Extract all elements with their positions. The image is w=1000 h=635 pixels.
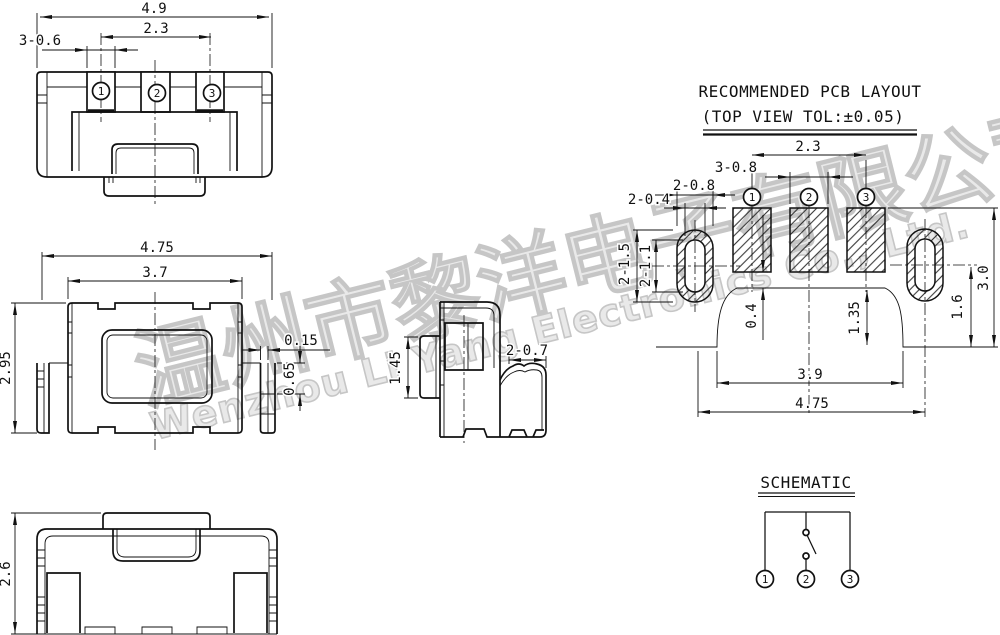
pcb-title-line2: (TOP VIEW TOL:±0.05) <box>702 107 905 126</box>
dim-top-pad: 3-0.6 <box>19 33 61 49</box>
dim-pcb-slot-l: 2-1.1 <box>638 245 654 287</box>
dim-pcb-hump: 1.35 <box>847 301 863 335</box>
terminal-3-label: 3 <box>209 87 216 100</box>
switch-contact-upper <box>803 530 809 536</box>
schematic-view: SCHEMATIC 1 2 3 <box>757 473 859 588</box>
schematic-title: SCHEMATIC <box>760 473 851 492</box>
dim-front-body: 3.7 <box>142 265 167 281</box>
dim-pcb-gap: 0.4 <box>744 303 760 328</box>
schematic-wires <box>765 512 850 570</box>
drawing-canvas: 4.9 2.3 3-0.6 1 2 3 4.75 3.7 2.95 0.15 0… <box>0 0 1000 635</box>
dim-front-width: 4.75 <box>140 240 174 256</box>
engineering-drawing-page: { "colors": { "line": "#111111", "waterm… <box>0 0 1000 635</box>
terminal-1-label: 1 <box>98 85 105 98</box>
front-view: 4.75 3.7 2.95 0.15 0.65 <box>0 240 330 450</box>
dim-pcb-oval-l: 2-1.5 <box>617 243 633 285</box>
switch-contact-lower <box>803 553 809 559</box>
dim-front-gap: 0.15 <box>284 333 318 349</box>
pcb-terminal-1-label: 1 <box>749 191 756 204</box>
dim-side-stem: 1.45 <box>388 351 404 385</box>
side-view: 1.45 2-0.7 <box>388 302 548 443</box>
schematic-terminal-3-label: 3 <box>847 573 854 586</box>
dim-front-leg: 0.65 <box>282 362 298 396</box>
button-front <box>102 330 212 403</box>
top-view: 4.9 2.3 3-0.6 1 2 3 <box>19 1 272 205</box>
dim-side-foot: 2-0.7 <box>506 343 548 359</box>
dim-pcb-total-h: 3.0 <box>976 265 992 290</box>
terminal-2-label: 2 <box>154 87 161 100</box>
pcb-title-line1: RECOMMENDED PCB LAYOUT <box>699 82 922 101</box>
dim-top-pitch: 2.3 <box>143 21 168 37</box>
dim-front-height: 2.95 <box>0 351 14 385</box>
dim-pcb-pitch: 2.3 <box>795 139 820 155</box>
dim-top-width: 4.9 <box>141 1 166 17</box>
dim-pcb-inner-w: 3.9 <box>797 367 822 383</box>
dim-pcb-slot-w: 2-0.4 <box>628 192 670 208</box>
dim-pcb-oval-w: 2-0.8 <box>673 178 715 194</box>
dim-pcb-outer-w: 4.75 <box>795 396 829 412</box>
dim-pcb-oval-y: 1.6 <box>950 294 966 319</box>
schematic-terminal-2-label: 2 <box>803 573 810 586</box>
dim-pcb-pad-w: 3-0.8 <box>715 160 757 176</box>
pcb-terminal-3-label: 3 <box>863 191 870 204</box>
pcb-terminal-2-label: 2 <box>806 191 813 204</box>
bottom-view: 2.6 <box>0 513 277 634</box>
schematic-terminal-1-label: 1 <box>762 573 769 586</box>
dim-bottom-height: 2.6 <box>0 561 14 586</box>
pcb-layout-view: RECOMMENDED PCB LAYOUT (TOP VIEW TOL:±0.… <box>617 82 998 417</box>
